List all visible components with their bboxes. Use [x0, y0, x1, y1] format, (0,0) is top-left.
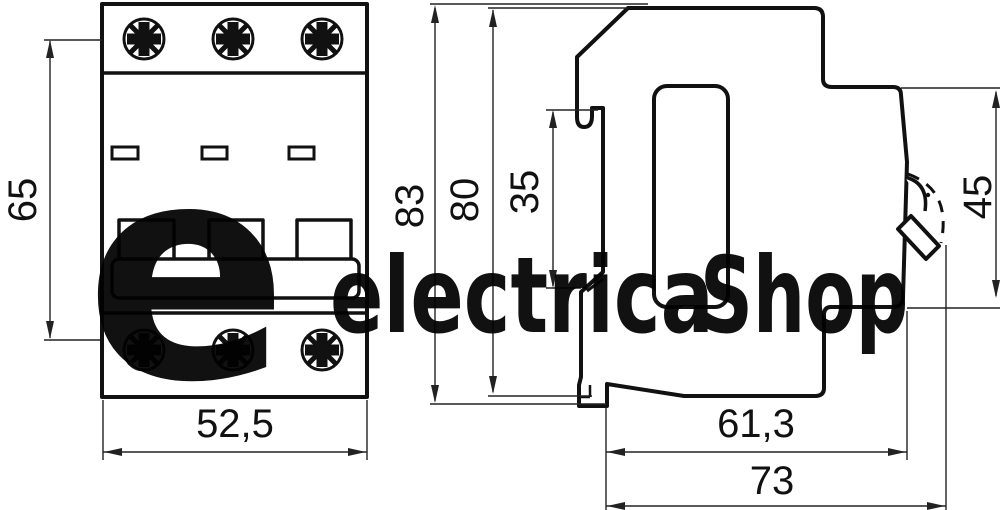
dimension-label-body-depth: 61,3 [717, 402, 795, 446]
watermark-brand-name: electrica [330, 235, 714, 357]
screw-icon [302, 19, 342, 59]
handle-swing-arc-dot [926, 193, 930, 197]
technical-drawing-page: 65 52,5 83 [0, 0, 1000, 510]
dimension-label-din-slot-height: 35 [503, 170, 547, 215]
screw-icon [213, 19, 253, 59]
dimension-label-side-overall-height: 83 [388, 184, 432, 229]
dimension-label-side-body-height: 80 [443, 178, 487, 223]
watermark-brand-suffix: Shop [700, 236, 908, 358]
screw-icon [124, 19, 164, 59]
dimension-label-overall-depth: 73 [750, 459, 795, 503]
watermark-logo-mark: e [85, 99, 288, 448]
dimension-label-front-face-height: 45 [956, 175, 1000, 220]
handle-boss-arc [905, 177, 926, 211]
breaker-dimension-drawing: 65 52,5 83 [0, 0, 1000, 510]
dimension-label-front-height: 65 [1, 178, 45, 223]
